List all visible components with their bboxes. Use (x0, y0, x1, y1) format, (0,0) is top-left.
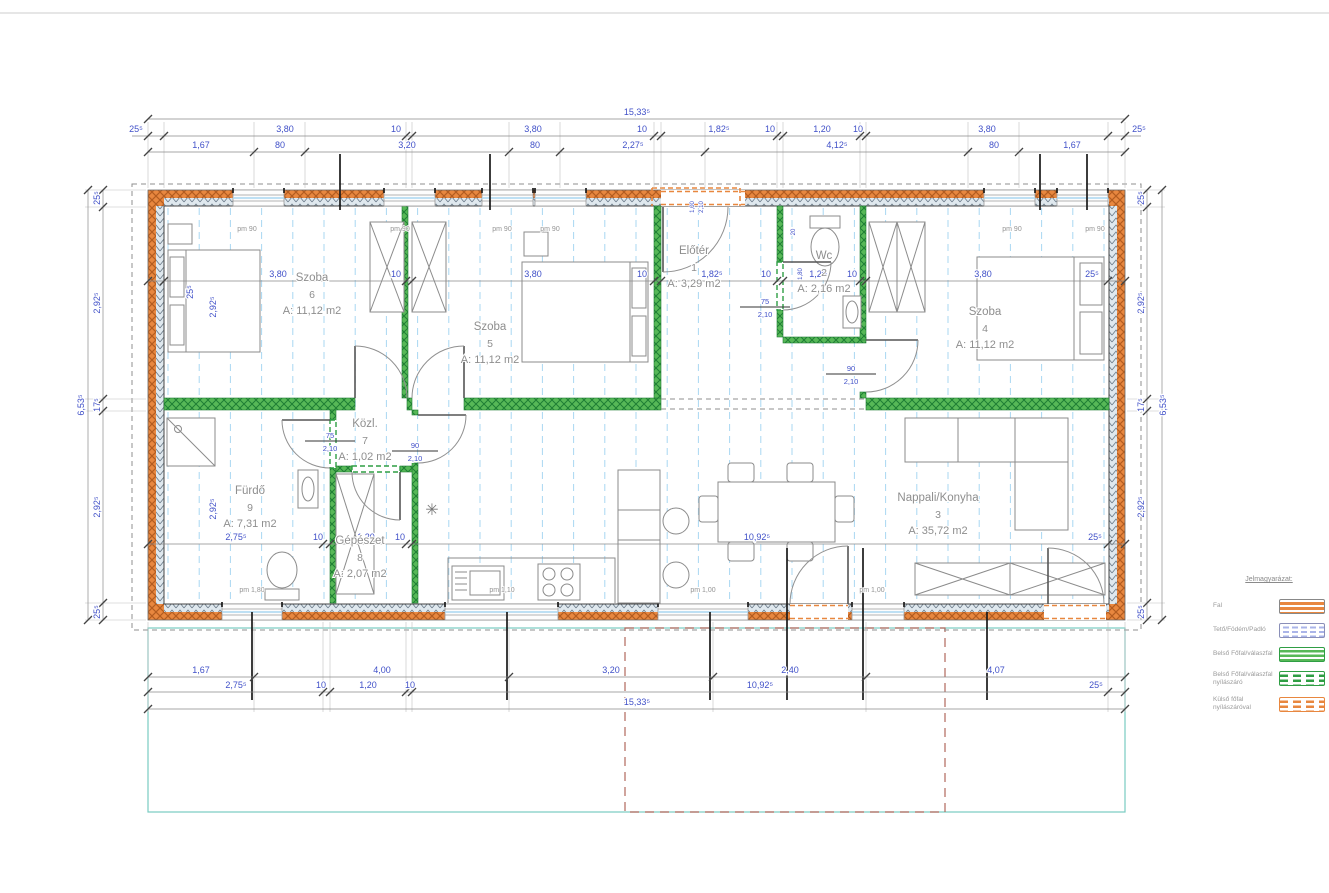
middle-wall-left (164, 398, 355, 410)
dim-label: Előtér (679, 245, 709, 257)
dim-label: 20 (791, 228, 797, 235)
dim-label: 10 (761, 269, 771, 279)
dim-label: 2,92⁵ (208, 498, 218, 520)
dim-label: 2,40 (781, 665, 799, 675)
nightstand (168, 224, 192, 244)
wall-gepeszet-nappali (412, 463, 418, 603)
dining-table (699, 463, 854, 561)
insulation-top (164, 198, 1109, 206)
dim-label: 17⁵ (1136, 398, 1146, 412)
dim-label: 1,20 (359, 680, 377, 690)
dim-label: 2,10 (844, 377, 859, 386)
washing-machine (452, 566, 504, 600)
dim-label: 6,53⁵ (1158, 394, 1168, 416)
dim-label: A: 1,02 m2 (338, 451, 391, 463)
dim-label: pm 1,00 (859, 587, 884, 594)
dim-label: 2,10 (758, 310, 773, 319)
terrace-dashed-outline (625, 628, 945, 812)
chair (787, 463, 813, 482)
dim-label: 2,10 (408, 454, 423, 463)
middle-wall-right (866, 398, 1109, 410)
dim-label: 10 (853, 124, 863, 134)
dim-label: 1,67 (192, 140, 210, 150)
dim-label: 80 (530, 140, 540, 150)
dim-label: 6,53⁵ (76, 394, 86, 416)
dim-label: 10,92⁵ (747, 680, 774, 690)
dim-label: 3,20 (398, 140, 416, 150)
dim-label: A: 11,12 m2 (461, 354, 520, 366)
dim-label: 25⁵ (92, 605, 102, 619)
dim-label: A: 11,12 m2 (283, 305, 342, 317)
lower-slab-area (148, 628, 1125, 812)
dim-label: 3,80 (524, 124, 542, 134)
chair (835, 496, 854, 522)
wall-wc-bottom (783, 337, 866, 343)
insulation-bottom (164, 604, 1109, 612)
dim-label: 2,92⁵ (208, 296, 218, 318)
dim-label: 10 (847, 269, 857, 279)
dim-label: 10 (765, 124, 775, 134)
wardrobe-szoba5 (412, 222, 446, 312)
wardrobe-szoba4 (869, 222, 925, 312)
wall-gepeszet-top-left (336, 466, 352, 472)
door-opening (1044, 604, 1106, 620)
exterior-wall-opening-swatch-icon (1279, 697, 1325, 712)
dim-label: 4 (982, 323, 988, 335)
wall-eloter-wc-lower (777, 310, 783, 337)
dim-label: 1,67 (192, 665, 210, 675)
dim-label: 3,20 (602, 665, 620, 675)
dim-label: 25⁵ (1088, 532, 1102, 542)
gepeszet-door-opening (352, 466, 400, 472)
dim-label: 5 (487, 338, 493, 350)
bed-szoba6 (168, 224, 260, 352)
dim-label: 2,92⁵ (92, 496, 102, 518)
dim-label: 7 (362, 435, 368, 447)
floor-plan-drawing: ✳ (0, 0, 1329, 893)
middle-wall-center (464, 398, 661, 410)
dim-label: 3,80 (978, 124, 996, 134)
dim-label: 1,00 (690, 201, 696, 213)
dim-label: Fürdő (235, 485, 265, 497)
door-kozl-nappali (418, 415, 466, 463)
dim-label: 75 (326, 431, 334, 440)
dim-label: 4,00 (373, 665, 391, 675)
dim-label: 90 (411, 441, 419, 450)
dim-label: 10 (391, 269, 401, 279)
wall-furdo-kozl-upper (330, 410, 336, 420)
dim-label: A: 2,16 m2 (797, 283, 850, 295)
dim-label: 2,92⁵ (92, 292, 102, 314)
dim-label: 10 (316, 680, 326, 690)
dim-label: 4,07 (987, 665, 1005, 675)
dim-label: 25⁵ (129, 124, 143, 134)
dim-label: pm 1,10 (489, 587, 514, 594)
dim-label: 4,12⁵ (826, 140, 848, 150)
wc-door-opening (777, 262, 783, 310)
dim-label: Szoba (474, 321, 507, 333)
dim-label: 2 (821, 267, 827, 279)
dim-label: Szoba (969, 306, 1002, 318)
dim-label: A: 3,29 m2 (667, 278, 720, 290)
dim-label: 25⁵ (1132, 124, 1146, 134)
toilet-furdo (265, 552, 299, 600)
interior-wall-swatch-icon (1279, 647, 1325, 662)
wardrobe-szoba6 (370, 222, 404, 312)
bed-szoba5 (522, 232, 648, 362)
dim-label: 1 (691, 262, 697, 274)
wall-wc-szoba4-lower (860, 392, 866, 398)
dim-label: 10 (405, 680, 415, 690)
dim-label: 15,33⁵ (624, 697, 651, 707)
legend-item-exterior-wall-opening: Külső főfal nyílászáróval (1213, 696, 1325, 712)
legend-item-wall: Fal (1213, 599, 1325, 614)
dim-label: 17⁵ (92, 398, 102, 412)
dim-label: 3 (935, 509, 941, 521)
dim-label: 10 (637, 269, 647, 279)
dim-label: 25⁵ (1136, 191, 1146, 205)
chair (728, 463, 754, 482)
dim-label: pm 90 (540, 226, 560, 233)
dim-label: 1,80 (798, 268, 804, 280)
dim-label: 3,80 (269, 269, 287, 279)
dim-label: A: 11,12 m2 (956, 339, 1015, 351)
dim-label: 1,67 (1063, 140, 1081, 150)
dim-label: pm 90 (237, 226, 257, 233)
dim-label: 10 (391, 124, 401, 134)
dim-label: 10 (637, 124, 647, 134)
dim-label: 80 (275, 140, 285, 150)
dim-label: Gépészet (335, 535, 385, 547)
dim-label: 2,75⁵ (225, 532, 247, 542)
dim-label: 6 (309, 289, 315, 301)
floor-plan-page: ✳ (0, 0, 1329, 893)
dim-label: Wc (816, 250, 833, 262)
dim-label: 25⁵ (185, 285, 195, 299)
dim-label: 25⁵ (92, 191, 102, 205)
dim-label: 9 (247, 502, 253, 514)
dim-label: 10 (313, 532, 323, 542)
dim-label: Nappali/Konyha (897, 492, 979, 504)
legend: Jelmagyarázat: Fal Tető/Födém/Padló Bels… (1213, 576, 1325, 721)
sofa (905, 418, 1068, 530)
dim-label: A: 7,31 m2 (223, 518, 276, 530)
shower (167, 418, 215, 466)
chair (699, 496, 718, 522)
door-opening (790, 604, 848, 620)
wall-kozl-nappali-post (412, 410, 418, 415)
dim-label: 80 (989, 140, 999, 150)
dim-label: Szoba (296, 272, 329, 284)
dim-label: pm 1,80 (239, 587, 264, 594)
chair (787, 542, 813, 561)
dim-label: 15,33⁵ (624, 107, 651, 117)
nightstand (524, 232, 548, 256)
dim-label: pm 90 (1085, 226, 1105, 233)
washbasin-furdo (298, 470, 318, 508)
dim-label: 90 (847, 364, 855, 373)
dim-label: pm 1,00 (690, 587, 715, 594)
dim-label: 2,27⁵ (622, 140, 644, 150)
interior-wall-opening-swatch-icon (1279, 671, 1325, 686)
legend-item-interior-wall-opening: Belső Főfal/válaszfal nyílászáró (1213, 671, 1325, 687)
stove (538, 564, 580, 600)
wall-eloter-wc-upper (777, 206, 783, 262)
dim-label: 2,75⁵ (225, 680, 247, 690)
dim-label: 8 (357, 552, 363, 564)
door-szoba6 (355, 346, 407, 398)
slab-swatch-icon (1279, 623, 1325, 638)
dim-label: pm 90 (390, 226, 410, 233)
dim-label: pm 90 (1002, 226, 1022, 233)
sideboard (915, 563, 1105, 595)
dim-label: pm 90 (492, 226, 512, 233)
dim-label: 2,10 (323, 444, 338, 453)
dim-label: 2,92⁵ (1136, 496, 1146, 518)
door-szoba5 (412, 346, 464, 398)
vent-symbol: ✳ (425, 502, 438, 519)
dim-label: 75 (761, 297, 769, 306)
slab-outline (148, 628, 1125, 812)
door-szoba4 (866, 340, 918, 392)
middle-wall-post (407, 398, 412, 410)
chair (728, 542, 754, 561)
legend-item-slab: Tető/Födém/Padló (1213, 623, 1325, 638)
dim-label: 1,20 (813, 124, 831, 134)
dim-label: 25⁵ (1136, 605, 1146, 619)
wall-swatch-icon (1279, 599, 1325, 614)
dim-label: A: 35,72 m2 (908, 525, 967, 537)
wall-gepeszet-top-right (400, 466, 412, 472)
dim-label: 25⁵ (1089, 680, 1103, 690)
washbasin-wc (843, 296, 861, 328)
dim-label: A: 2,07 m2 (333, 568, 386, 580)
dim-label: 2,92⁵ (1136, 292, 1146, 314)
dim-label: 3,80 (524, 269, 542, 279)
dim-label: 10,92⁵ (744, 532, 771, 542)
legend-item-interior-wall: Belső Főfal/válaszfal (1213, 647, 1325, 662)
dim-label: 2,10 (699, 201, 705, 213)
dim-label: 3,80 (974, 269, 992, 279)
dim-label: 25⁵ (1085, 269, 1099, 279)
wall-szoba5-eloter (654, 206, 661, 398)
dim-label: 1,82⁵ (708, 124, 730, 134)
dim-label: Közl. (352, 418, 378, 430)
extension-lines (85, 122, 1165, 712)
dim-label: 10 (395, 532, 405, 542)
legend-title: Jelmagyarázat: (1213, 576, 1325, 585)
dim-label: 3,80 (276, 124, 294, 134)
